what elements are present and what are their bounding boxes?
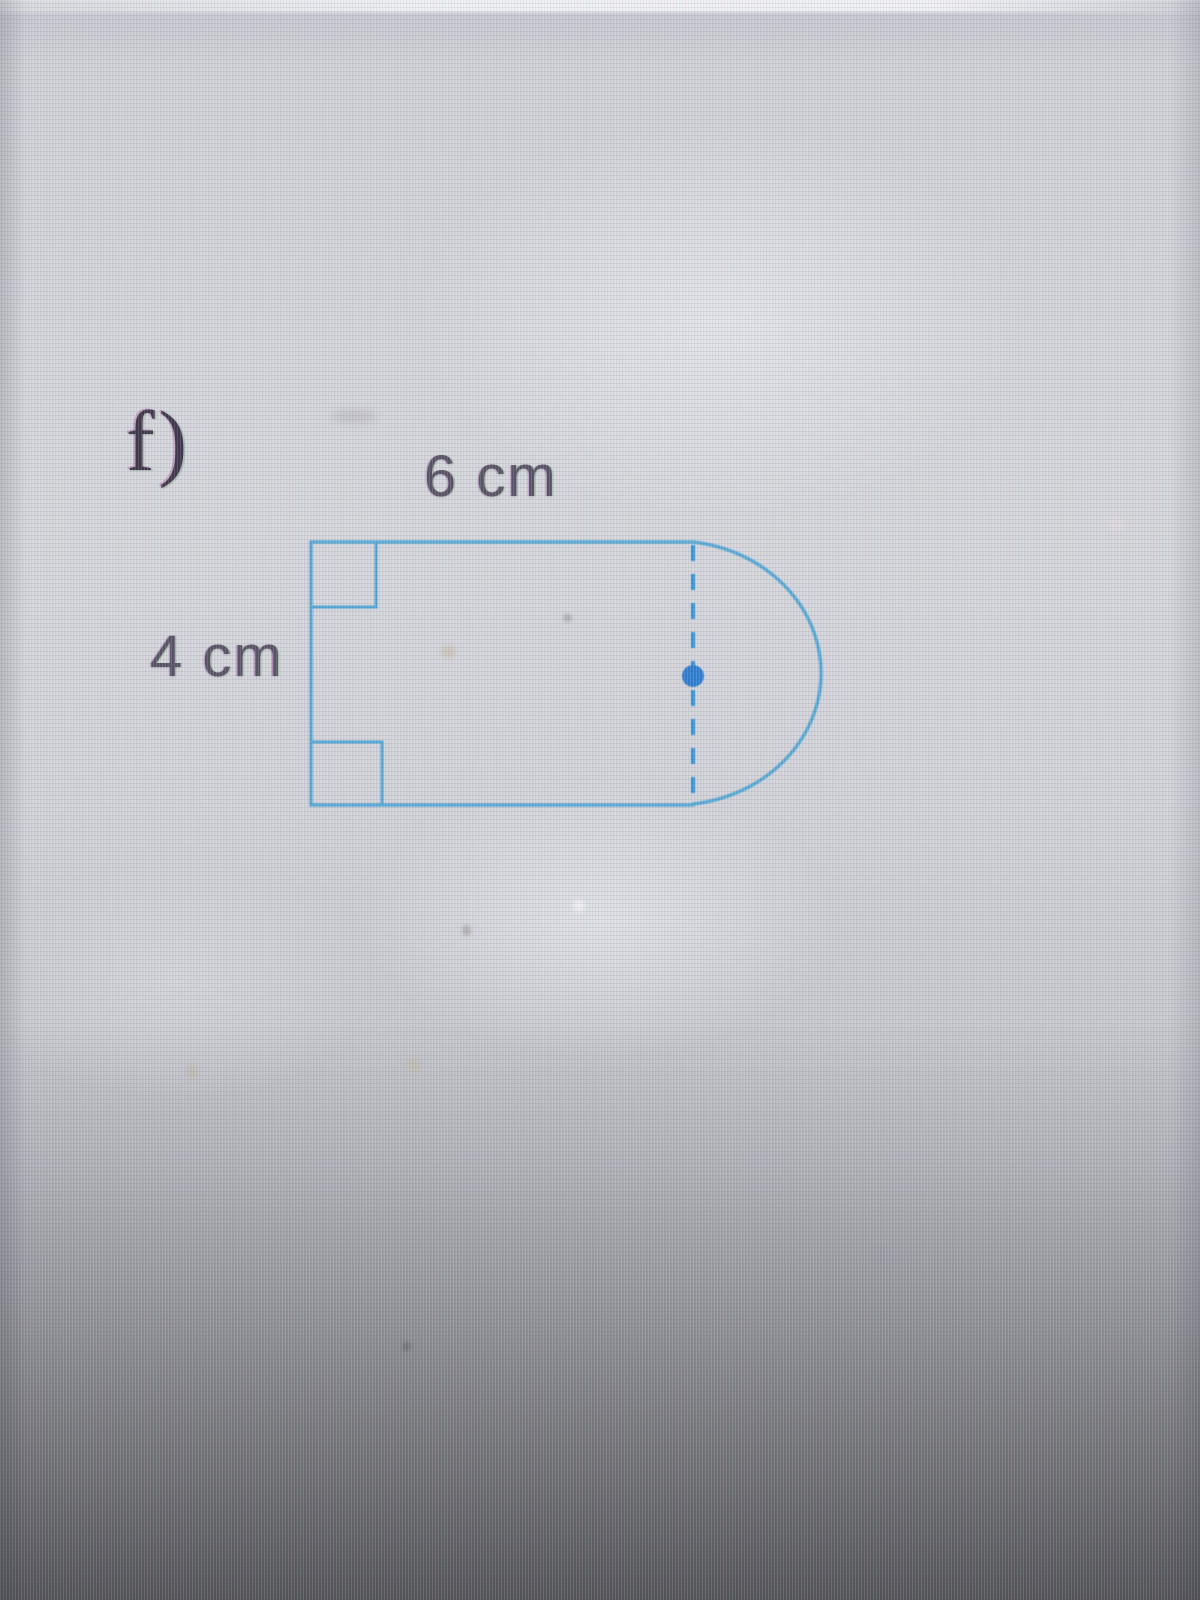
right-angle-marker-bottom	[312, 742, 382, 804]
problem-label: f)	[126, 398, 191, 484]
worksheet-photo: f) 6 cm 4 cm	[0, 0, 1200, 1600]
semicircle-arc	[693, 542, 821, 804]
dust-speck	[441, 645, 456, 658]
dust-speck	[402, 1342, 411, 1351]
right-angle-marker-top	[312, 543, 376, 607]
center-dot	[682, 665, 704, 687]
dust-speck	[408, 1058, 420, 1073]
dust-speck	[462, 925, 471, 936]
dust-speck	[876, 1246, 886, 1268]
screen-glare-top-strip	[0, 0, 1200, 12]
geometry-figure	[0, 0, 1200, 1600]
dust-speck	[563, 614, 572, 622]
left-dimension-label: 4 cm	[150, 628, 284, 686]
top-dimension-label: 6 cm	[424, 448, 558, 506]
dust-speck	[186, 1064, 198, 1079]
dust-speck	[332, 410, 376, 423]
rectangle-outline	[311, 542, 693, 805]
dust-speck	[573, 900, 585, 912]
dust-speck	[1108, 516, 1126, 532]
